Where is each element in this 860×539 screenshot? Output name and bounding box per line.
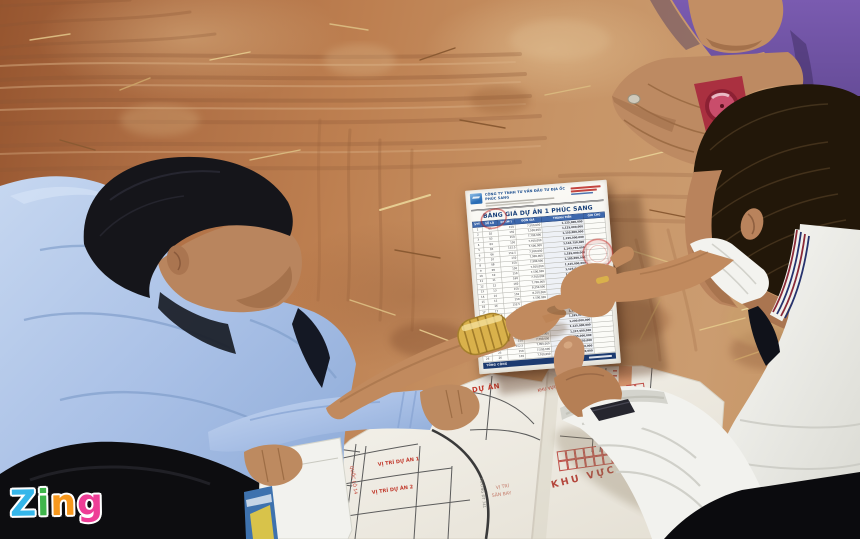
watermark-letter-z: Z — [10, 483, 38, 524]
pointing-arm-right — [547, 238, 769, 317]
pointing-arm-left — [326, 294, 569, 419]
watermark-letter-n: n — [50, 483, 77, 524]
gripping-hand — [554, 335, 650, 437]
thumb-right — [610, 247, 634, 268]
watermark-letter-i: i — [37, 483, 51, 524]
photo-scene: ĐƯỜNG KẾT NỐI KHU VỰC CÁC DỰ ÁN CHỦ ĐẦU … — [0, 0, 860, 539]
scene-overlay-layer — [0, 0, 860, 539]
watermark-letter-g: g — [77, 482, 104, 523]
zing-watermark: Zing — [10, 483, 105, 525]
